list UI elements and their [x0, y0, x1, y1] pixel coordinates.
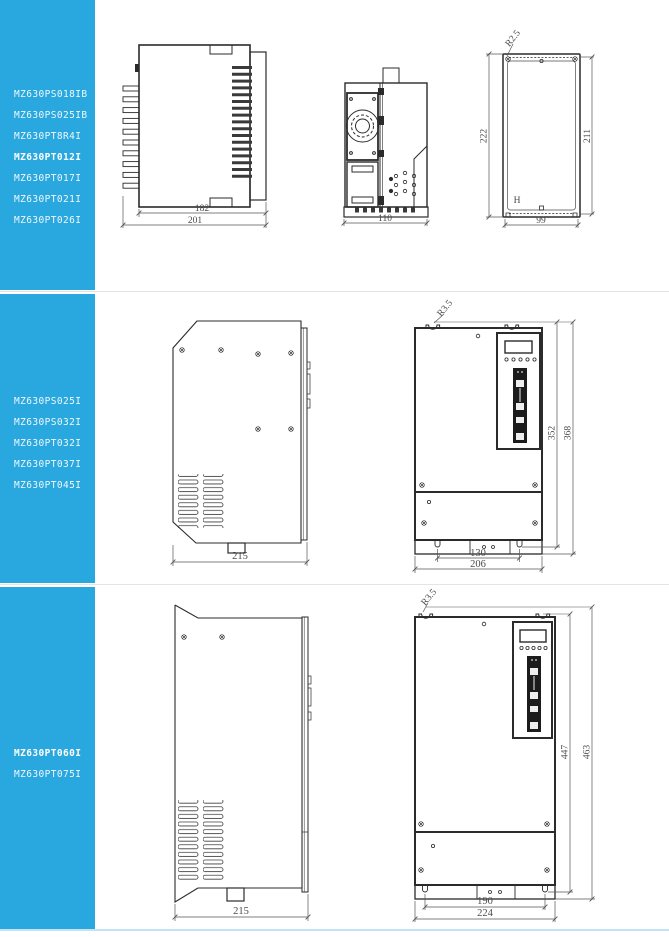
- vent-grille: [178, 474, 200, 528]
- drawing-unit1-top-view: 182 201: [121, 45, 269, 228]
- drawing-unit3-side-view: 215: [173, 605, 311, 921]
- heatsink-fins: [123, 86, 139, 188]
- radius-label: R3.5: [420, 587, 440, 608]
- foot-notch: [435, 540, 440, 547]
- dim-368: 368: [564, 426, 574, 441]
- vent-grille: [203, 474, 225, 528]
- marking-h: H: [514, 196, 521, 206]
- dim-201: 201: [188, 216, 203, 226]
- vent-grille: [178, 800, 200, 880]
- dim-130: 130: [470, 548, 486, 559]
- keypad-panel: [513, 622, 552, 738]
- dim-206: 206: [470, 559, 486, 570]
- drawing-unit2-side-view: 215: [171, 321, 310, 566]
- dimension-lines: [413, 605, 595, 922]
- drawing-unit1-side-view: 110: [342, 68, 430, 226]
- drawings-canvas: 182 201: [0, 0, 669, 937]
- dim-463: 463: [583, 745, 593, 760]
- dim-224: 224: [477, 908, 494, 919]
- dim-215: 215: [233, 906, 249, 917]
- dim-222: 222: [480, 129, 490, 144]
- dim-99: 99: [536, 216, 546, 226]
- drawing-unit3-front-view: R3.5: [413, 587, 595, 922]
- dim-211: 211: [583, 129, 593, 143]
- terminal-holes: [389, 171, 415, 195]
- fan-icon: [347, 98, 379, 155]
- dim-182: 182: [195, 204, 210, 214]
- dim-190: 190: [477, 896, 493, 907]
- foot-notch: [543, 885, 548, 892]
- foot-notch: [423, 885, 428, 892]
- radius-label: R3.5: [436, 298, 456, 319]
- radius-label: R2.5: [504, 28, 523, 49]
- keypad-panel: [497, 333, 540, 449]
- page: MZ630PS018IB MZ630PS025IB MZ630PT8R4I MZ…: [0, 0, 669, 937]
- dim-352: 352: [548, 426, 558, 441]
- foot-notch: [517, 540, 522, 547]
- drawing-unit2-front-view: R3.5: [413, 298, 576, 573]
- dim-447: 447: [561, 745, 571, 760]
- display: [520, 630, 546, 642]
- vent-grille: [203, 800, 225, 880]
- drawing-unit1-back-view: H R2.5 222 211 99: [480, 28, 595, 228]
- dim-215: 215: [232, 551, 248, 562]
- dimension-lines: [413, 320, 576, 573]
- dim-110: 110: [378, 214, 392, 224]
- display: [505, 341, 532, 353]
